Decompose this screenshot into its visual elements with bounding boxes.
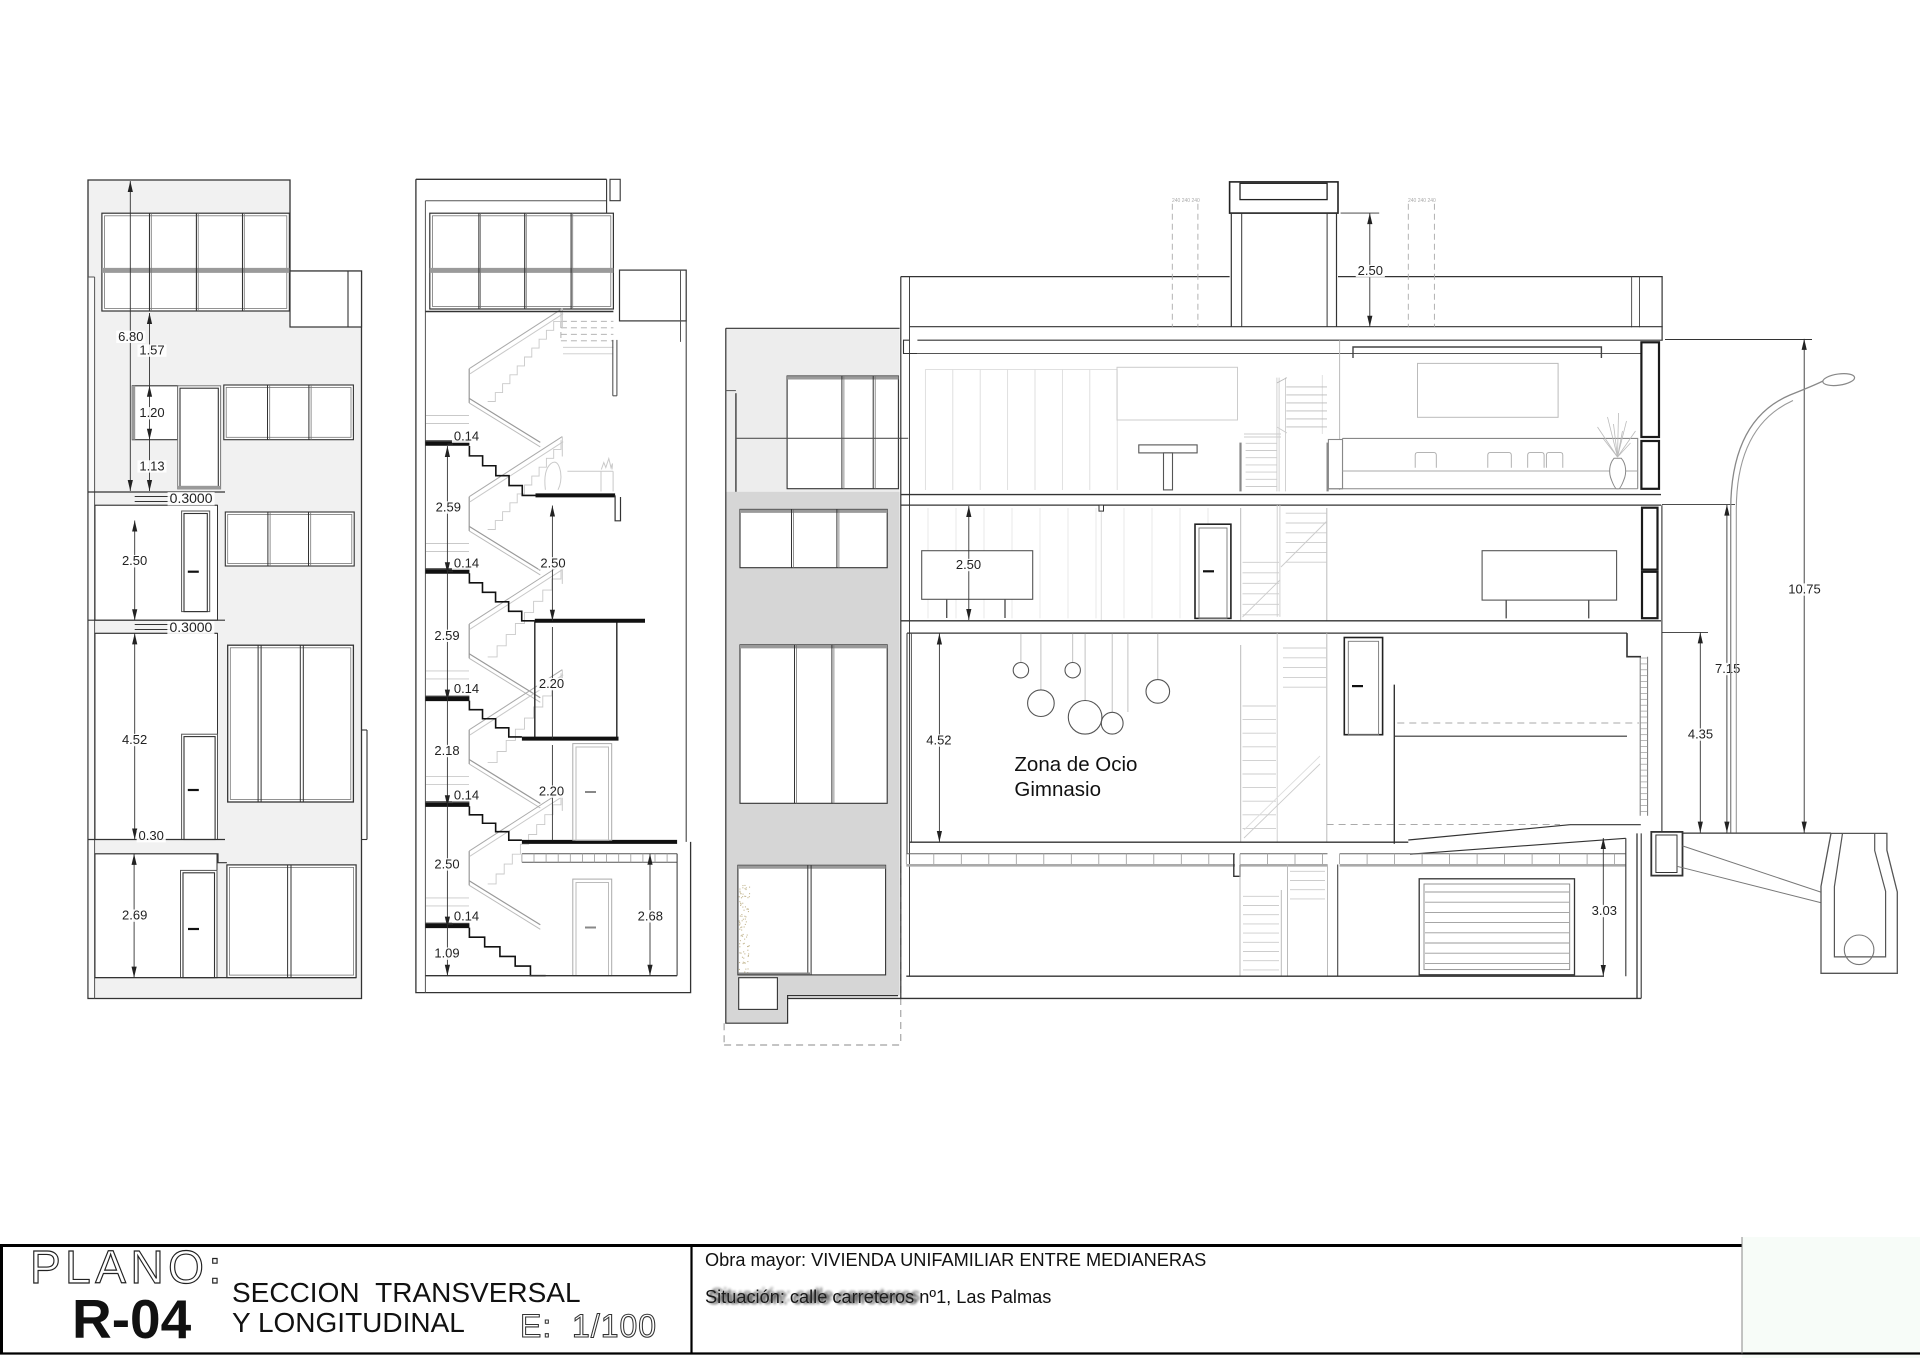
- svg-text:0.3000: 0.3000: [170, 490, 213, 506]
- svg-text:0.14: 0.14: [454, 909, 479, 924]
- svg-text:2.50: 2.50: [1358, 263, 1383, 278]
- svg-text:2.18: 2.18: [434, 743, 459, 758]
- svg-text:0.3000: 0.3000: [169, 619, 212, 635]
- svg-text:2.59: 2.59: [434, 628, 459, 643]
- svg-text:2.59: 2.59: [436, 500, 461, 515]
- svg-text:4.52: 4.52: [122, 732, 147, 747]
- svg-text:1.57: 1.57: [139, 343, 164, 358]
- svg-text:3.03: 3.03: [1592, 903, 1617, 918]
- svg-text:0.30: 0.30: [139, 828, 164, 843]
- svg-text:0.14: 0.14: [454, 681, 479, 696]
- svg-text:1.20: 1.20: [139, 405, 164, 420]
- svg-text:4.52: 4.52: [926, 733, 951, 748]
- svg-text:1.13: 1.13: [139, 458, 164, 473]
- svg-text:4.35: 4.35: [1688, 727, 1713, 742]
- svg-text:0.14: 0.14: [454, 556, 479, 571]
- svg-text:0.14: 0.14: [454, 429, 479, 444]
- svg-text:1.09: 1.09: [434, 946, 459, 961]
- svg-text:6.80: 6.80: [118, 329, 143, 344]
- svg-text:R-04: R-04: [72, 1288, 192, 1350]
- svg-text:Zona de Ocio: Zona de Ocio: [1014, 753, 1137, 776]
- svg-text:SECCION TRANSVERSAL: SECCION TRANSVERSAL: [232, 1277, 581, 1308]
- svg-text:Gimnasio: Gimnasio: [1014, 778, 1101, 801]
- svg-text:10.75: 10.75: [1788, 582, 1821, 597]
- svg-text:Situación: calle carreteros: Situación: calle carreteros: [711, 1285, 920, 1305]
- svg-text:0.14: 0.14: [454, 787, 479, 802]
- svg-text:240 240 240: 240 240 240: [1408, 198, 1436, 204]
- svg-text:2.20: 2.20: [539, 784, 564, 799]
- svg-text:E: 1/100: E: 1/100: [520, 1308, 657, 1344]
- svg-text:2.69: 2.69: [122, 908, 147, 923]
- svg-text:2.50: 2.50: [540, 555, 565, 570]
- svg-text:Obra mayor: VIVIENDA UNIFAMILI: Obra mayor: VIVIENDA UNIFAMILIAR ENTRE M…: [705, 1250, 1206, 1270]
- svg-text:240 240 240: 240 240 240: [1172, 198, 1200, 204]
- svg-text:Y LONGITUDINAL: Y LONGITUDINAL: [232, 1307, 465, 1338]
- svg-text:2.20: 2.20: [539, 676, 564, 691]
- svg-text:2.50: 2.50: [122, 553, 147, 568]
- svg-text:2.50: 2.50: [956, 557, 981, 572]
- svg-text:PLANO:: PLANO:: [30, 1241, 226, 1293]
- svg-text:2.68: 2.68: [638, 908, 663, 923]
- svg-text:2.50: 2.50: [434, 856, 459, 871]
